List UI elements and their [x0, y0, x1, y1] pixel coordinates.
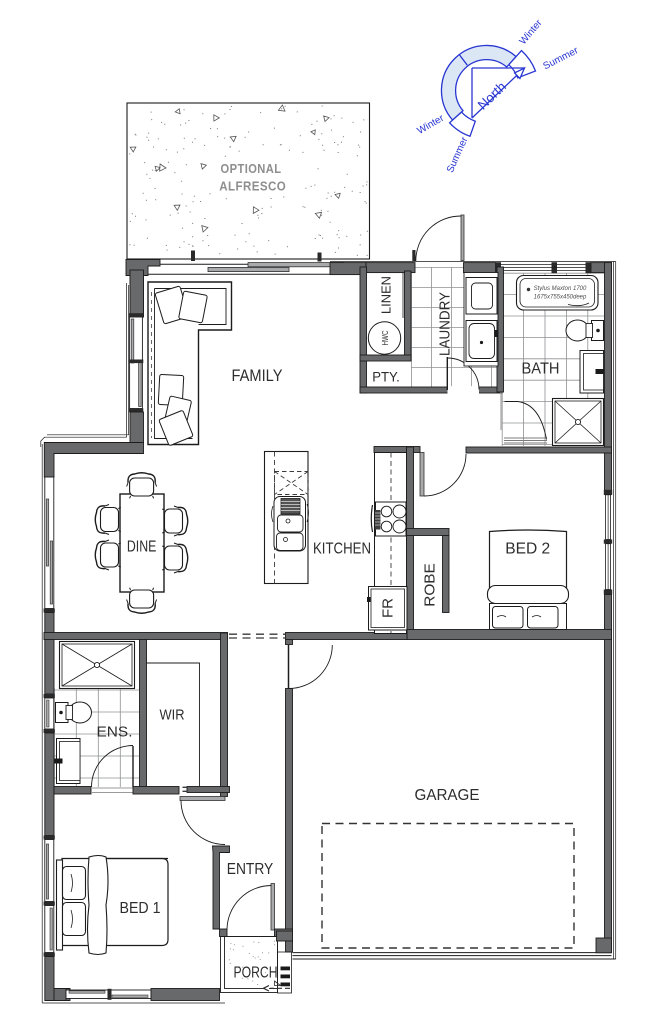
svg-text:Winter: Winter [415, 113, 446, 137]
svg-text:BED 1: BED 1 [120, 900, 161, 917]
svg-text:Summer: Summer [542, 45, 581, 72]
svg-text:FAMILY: FAMILY [232, 366, 283, 385]
svg-text:ALFRESCO: ALFRESCO [219, 179, 286, 194]
svg-text:GARAGE: GARAGE [415, 787, 480, 804]
svg-text:Summer: Summer [445, 135, 471, 175]
svg-text:ENS.: ENS. [97, 725, 133, 741]
svg-text:ENTRY: ENTRY [227, 861, 274, 878]
svg-text:BATH: BATH [522, 361, 560, 378]
svg-text:HWC: HWC [380, 331, 390, 346]
svg-text:WIR: WIR [160, 707, 185, 724]
svg-text:1675x755x450deep: 1675x755x450deep [534, 295, 587, 301]
svg-text:LAUNDRY: LAUNDRY [438, 292, 454, 356]
svg-text:PTY.: PTY. [372, 369, 400, 384]
svg-text:FR: FR [381, 598, 397, 618]
svg-text:Stylus Maxton 1700: Stylus Maxton 1700 [534, 286, 587, 292]
svg-text:PORCH: PORCH [234, 965, 278, 982]
svg-text:DINE: DINE [127, 538, 157, 555]
svg-text:KITCHEN: KITCHEN [313, 541, 371, 558]
svg-text:LINEN: LINEN [379, 276, 394, 314]
svg-text:North: North [475, 79, 509, 113]
svg-text:BED 2: BED 2 [505, 541, 550, 558]
svg-text:OPTIONAL: OPTIONAL [221, 161, 282, 176]
svg-text:Winter: Winter [518, 17, 545, 47]
svg-text:ROBE: ROBE [422, 563, 439, 607]
